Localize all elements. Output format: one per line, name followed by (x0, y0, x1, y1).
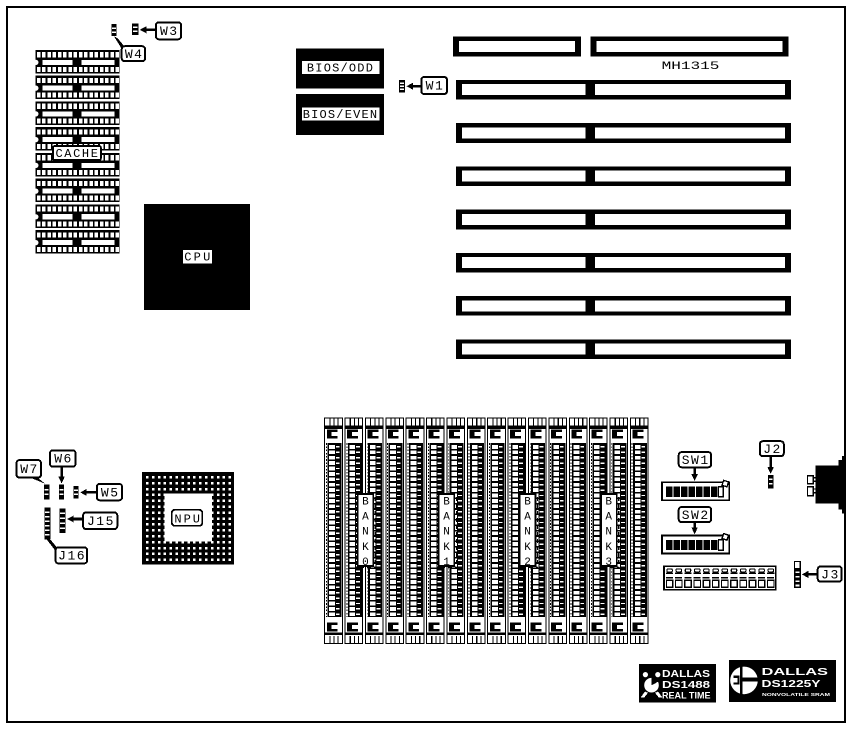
svg-text:W5: W5 (101, 485, 120, 500)
svg-text:DS1225Y: DS1225Y (762, 678, 821, 690)
svg-text:W4: W4 (125, 47, 144, 62)
svg-text:A: A (524, 512, 531, 524)
svg-text:N: N (362, 527, 369, 539)
svg-text:W7: W7 (20, 462, 39, 477)
svg-text:B: B (605, 497, 612, 509)
svg-text:K: K (362, 542, 369, 554)
svg-text:CACHE: CACHE (55, 147, 99, 161)
svg-text:DS1488: DS1488 (662, 680, 711, 691)
svg-text:B: B (362, 497, 369, 509)
svg-text:B: B (443, 497, 450, 509)
svg-text:MH1315: MH1315 (662, 61, 720, 73)
svg-text:BIOS/EVEN: BIOS/EVEN (303, 108, 379, 122)
svg-text:BIOS/ODD: BIOS/ODD (307, 62, 374, 76)
svg-text:1: 1 (443, 557, 450, 569)
svg-text:K: K (605, 542, 612, 554)
svg-text:W3: W3 (160, 24, 179, 39)
svg-text:J2: J2 (763, 442, 782, 457)
svg-text:N: N (605, 527, 612, 539)
svg-text:2: 2 (524, 557, 531, 569)
svg-text:A: A (362, 512, 369, 524)
svg-text:J16: J16 (58, 549, 86, 564)
svg-text:DALLAS: DALLAS (662, 669, 710, 680)
svg-text:A: A (443, 512, 450, 524)
svg-text:SW2: SW2 (682, 508, 710, 523)
svg-text:NONVOLATILE SRAM: NONVOLATILE SRAM (762, 692, 831, 697)
svg-text:B: B (524, 497, 531, 509)
svg-text:N: N (524, 527, 531, 539)
svg-text:SW1: SW1 (682, 453, 710, 468)
svg-text:N: N (443, 527, 450, 539)
svg-text:NPU: NPU (174, 513, 202, 527)
svg-text:W1: W1 (426, 79, 445, 94)
svg-text:J3: J3 (821, 567, 840, 582)
svg-text:CPU: CPU (184, 251, 212, 265)
svg-text:K: K (443, 542, 450, 554)
svg-text:3: 3 (605, 557, 612, 569)
svg-text:A: A (605, 512, 612, 524)
svg-text:W6: W6 (54, 452, 73, 467)
svg-text:J15: J15 (87, 514, 115, 529)
svg-text:0: 0 (362, 557, 369, 569)
svg-text:K: K (524, 542, 531, 554)
svg-text:REAL TIME: REAL TIME (662, 690, 711, 701)
svg-text:DALLAS: DALLAS (762, 666, 829, 678)
